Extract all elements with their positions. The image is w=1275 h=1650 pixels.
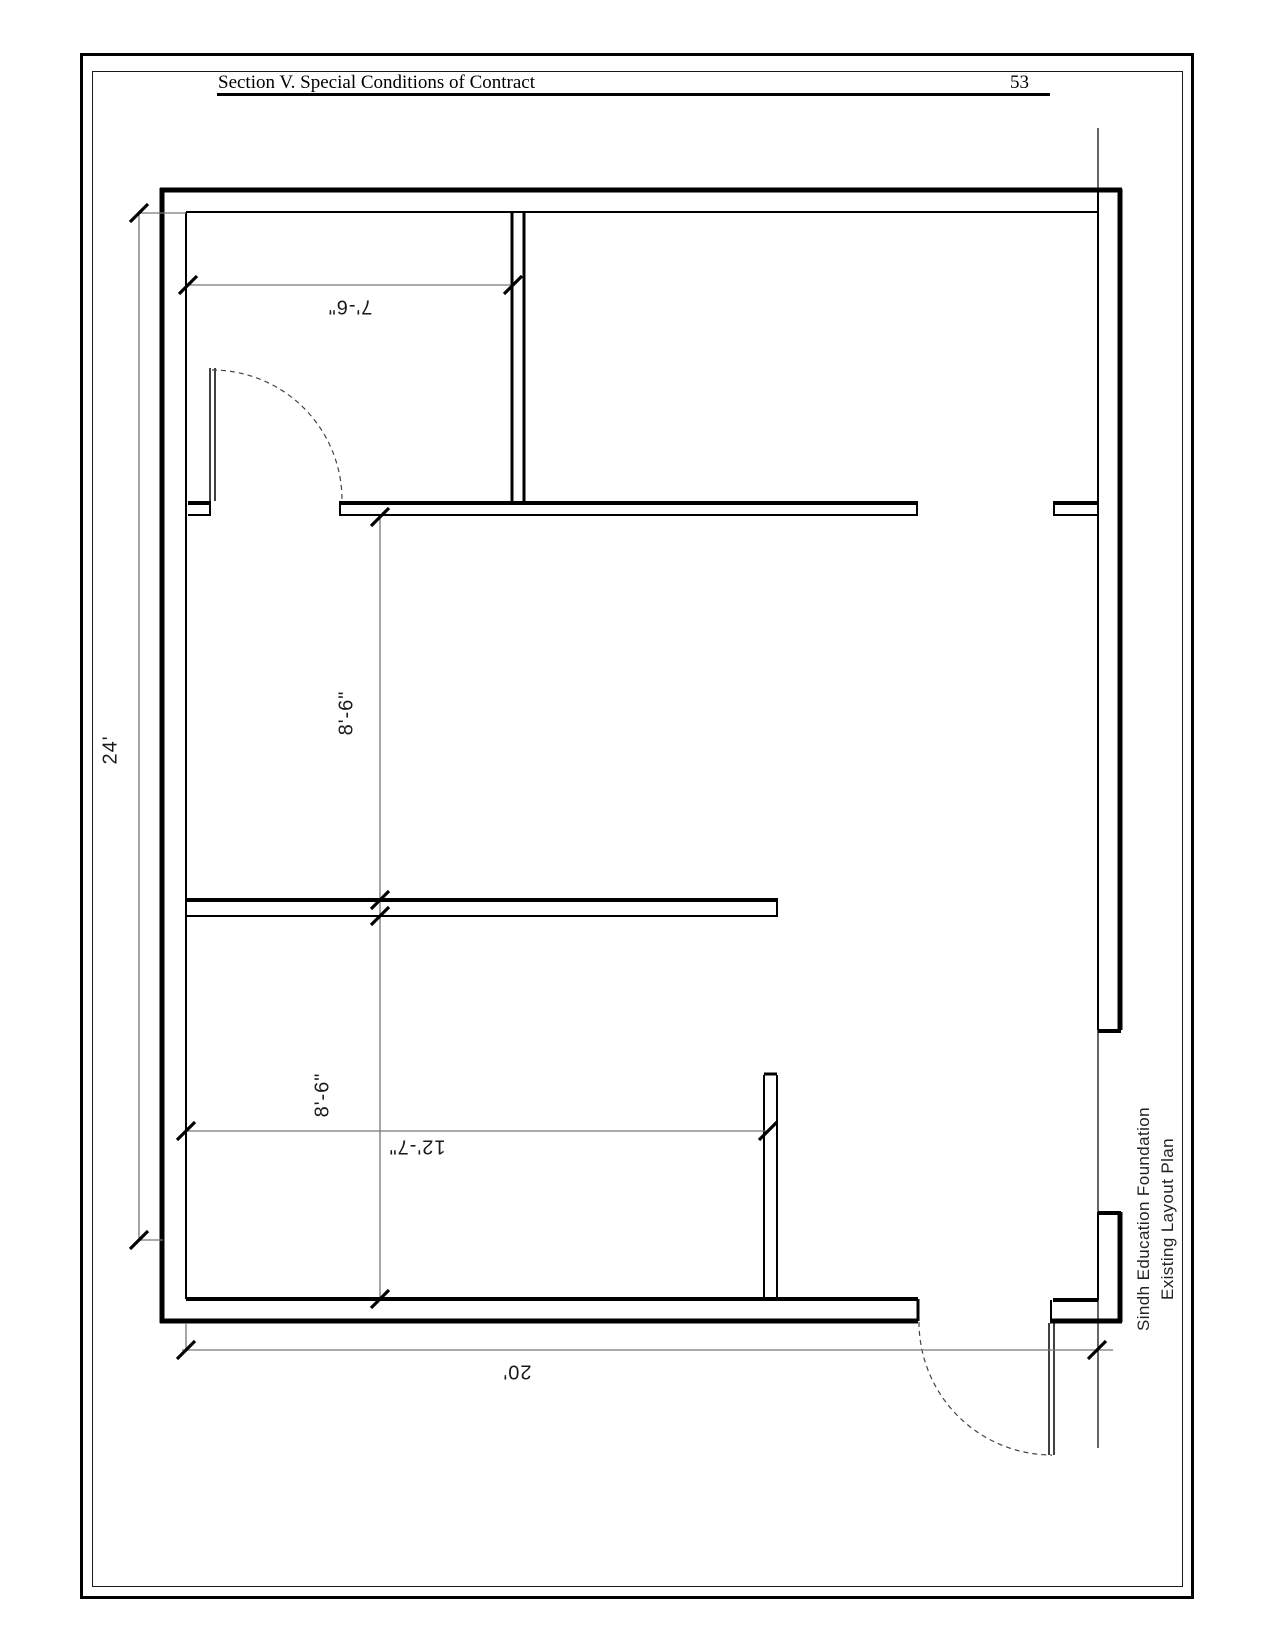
door-swing-arc-lower xyxy=(919,1322,1052,1455)
dim-label-total-width: 20' xyxy=(502,1360,531,1383)
door-swing-arc-upper xyxy=(212,370,342,500)
plan-caption-line1: Sindh Education Foundation xyxy=(1132,1107,1156,1331)
document-page: Section V. Special Conditions of Contrac… xyxy=(0,0,1275,1650)
dim-label-room-width: 7'-6" xyxy=(328,295,373,318)
dimension-lines xyxy=(139,213,1113,1352)
dim-label-lower-room-width: 12'-7" xyxy=(389,1135,446,1158)
interior-walls xyxy=(186,212,1098,1299)
dim-label-total-height: 24' xyxy=(100,735,123,764)
dimension-ticks xyxy=(130,204,1106,1359)
dim-label-bay-lower: 8'-6" xyxy=(312,1073,335,1118)
dim-label-bay-upper: 8'-6" xyxy=(336,691,359,736)
doors xyxy=(210,368,1054,1455)
exterior-walls xyxy=(160,188,1122,1323)
plan-caption: Sindh Education Foundation Existing Layo… xyxy=(1132,1107,1180,1331)
door-leaf-upper xyxy=(210,368,215,501)
floor-plan-drawing xyxy=(0,0,1275,1650)
door-leaf-lower xyxy=(1049,1323,1054,1455)
plan-caption-line2: Existing Layout Plan xyxy=(1156,1107,1180,1331)
